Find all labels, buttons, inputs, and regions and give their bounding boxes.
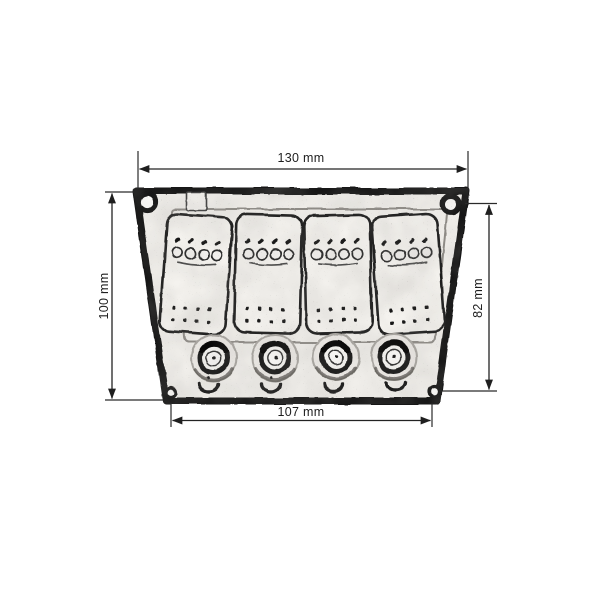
- scan-noise-speckle: [0, 0, 600, 600]
- dimension-label-left-height: 100 mm: [97, 273, 111, 320]
- dimension-label-bottom-width: 107 mm: [278, 405, 325, 419]
- dimension-bottom-width: 107 mm: [171, 403, 432, 427]
- dimension-label-right-height: 82 mm: [471, 278, 485, 318]
- dimension-label-top-width: 130 mm: [278, 151, 325, 165]
- drawing-canvas: 130 mm 100 mm 82 mm 107 mm: [0, 0, 600, 600]
- technical-drawing: 130 mm 100 mm 82 mm 107 mm: [0, 0, 600, 600]
- dimension-top-width: 130 mm: [138, 151, 468, 189]
